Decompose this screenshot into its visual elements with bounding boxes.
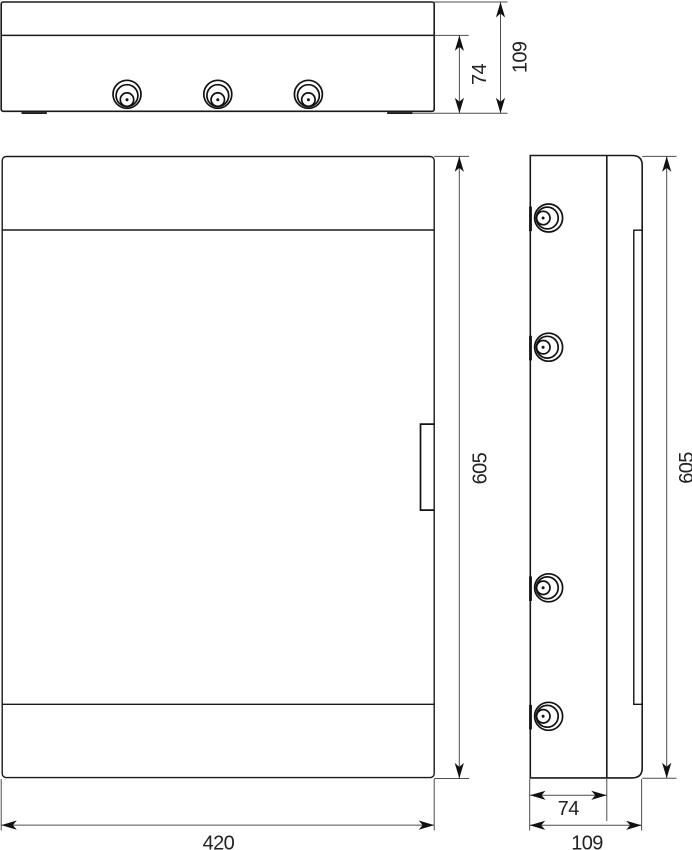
svg-text:74: 74 bbox=[469, 64, 491, 86]
svg-text:420: 420 bbox=[203, 832, 235, 850]
svg-text:605: 605 bbox=[470, 452, 492, 484]
svg-text:109: 109 bbox=[509, 41, 531, 73]
svg-text:74: 74 bbox=[558, 798, 580, 820]
svg-text:109: 109 bbox=[571, 833, 603, 850]
svg-text:605: 605 bbox=[676, 452, 692, 484]
